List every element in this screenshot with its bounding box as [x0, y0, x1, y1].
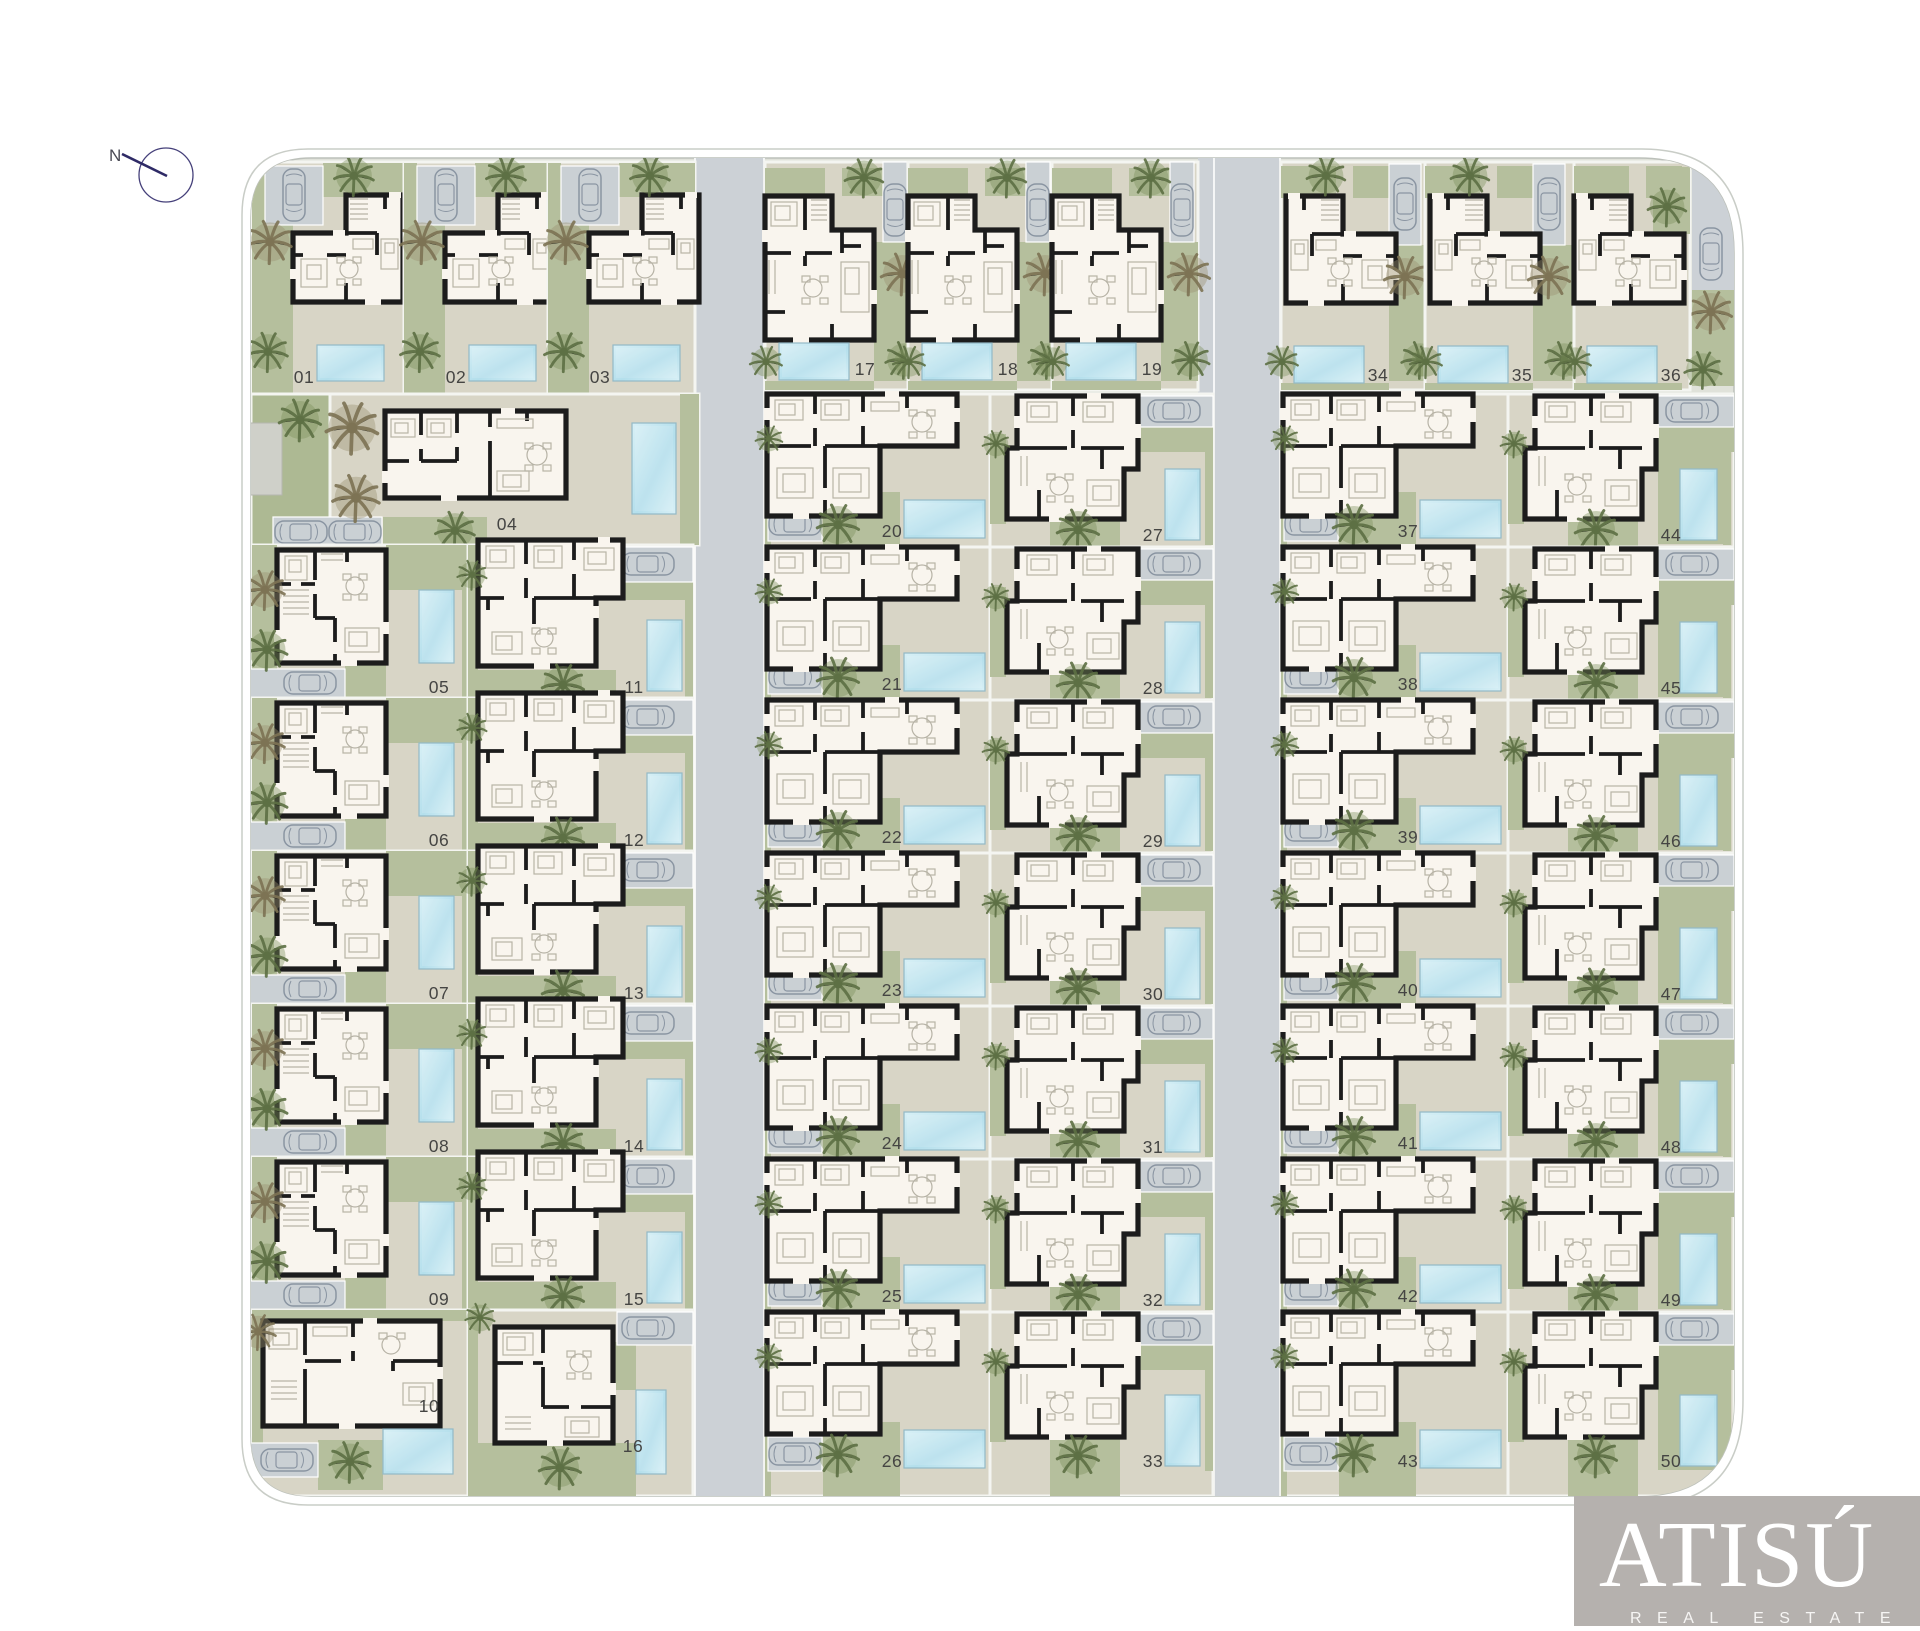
svg-text:N: N: [109, 146, 121, 165]
svg-text:21: 21: [882, 674, 902, 694]
svg-text:42: 42: [1398, 1286, 1418, 1306]
svg-text:09: 09: [429, 1289, 449, 1309]
svg-text:12: 12: [624, 830, 644, 850]
svg-text:24: 24: [882, 1133, 902, 1153]
svg-text:45: 45: [1661, 678, 1681, 698]
svg-text:35: 35: [1512, 365, 1532, 385]
svg-text:20: 20: [882, 521, 902, 541]
svg-text:44: 44: [1661, 525, 1681, 545]
svg-text:36: 36: [1661, 365, 1681, 385]
svg-text:07: 07: [429, 983, 449, 1003]
svg-text:39: 39: [1398, 827, 1418, 847]
svg-text:50: 50: [1661, 1451, 1681, 1471]
svg-text:28: 28: [1143, 678, 1163, 698]
svg-text:34: 34: [1368, 365, 1388, 385]
svg-text:18: 18: [998, 359, 1018, 379]
svg-text:01: 01: [294, 367, 314, 387]
svg-text:30: 30: [1143, 984, 1163, 1004]
svg-text:15: 15: [624, 1289, 644, 1309]
svg-text:29: 29: [1143, 831, 1163, 851]
svg-text:27: 27: [1143, 525, 1163, 545]
svg-text:31: 31: [1143, 1137, 1163, 1157]
svg-text:40: 40: [1398, 980, 1418, 1000]
svg-text:32: 32: [1143, 1290, 1163, 1310]
svg-text:19: 19: [1142, 359, 1162, 379]
svg-text:37: 37: [1398, 521, 1418, 541]
svg-text:41: 41: [1398, 1133, 1418, 1153]
svg-text:02: 02: [446, 367, 466, 387]
svg-text:43: 43: [1398, 1451, 1418, 1471]
svg-text:47: 47: [1661, 984, 1681, 1004]
svg-text:05: 05: [429, 677, 449, 697]
svg-text:ATISÚ: ATISÚ: [1599, 1503, 1875, 1607]
svg-text:22: 22: [882, 827, 902, 847]
svg-text:14: 14: [624, 1136, 644, 1156]
svg-text:REAL ESTATE: REAL ESTATE: [1630, 1610, 1906, 1626]
svg-text:23: 23: [882, 980, 902, 1000]
svg-text:03: 03: [590, 367, 610, 387]
svg-text:26: 26: [882, 1451, 902, 1471]
svg-text:48: 48: [1661, 1137, 1681, 1157]
svg-text:04: 04: [497, 514, 517, 534]
svg-text:17: 17: [855, 359, 875, 379]
svg-text:13: 13: [624, 983, 644, 1003]
svg-text:06: 06: [429, 830, 449, 850]
svg-text:16: 16: [623, 1436, 643, 1456]
svg-text:49: 49: [1661, 1290, 1681, 1310]
svg-text:25: 25: [882, 1286, 902, 1306]
svg-text:10: 10: [419, 1396, 439, 1416]
svg-text:38: 38: [1398, 674, 1418, 694]
svg-text:08: 08: [429, 1136, 449, 1156]
svg-text:11: 11: [624, 677, 643, 697]
svg-text:33: 33: [1143, 1451, 1163, 1471]
svg-text:46: 46: [1661, 831, 1681, 851]
